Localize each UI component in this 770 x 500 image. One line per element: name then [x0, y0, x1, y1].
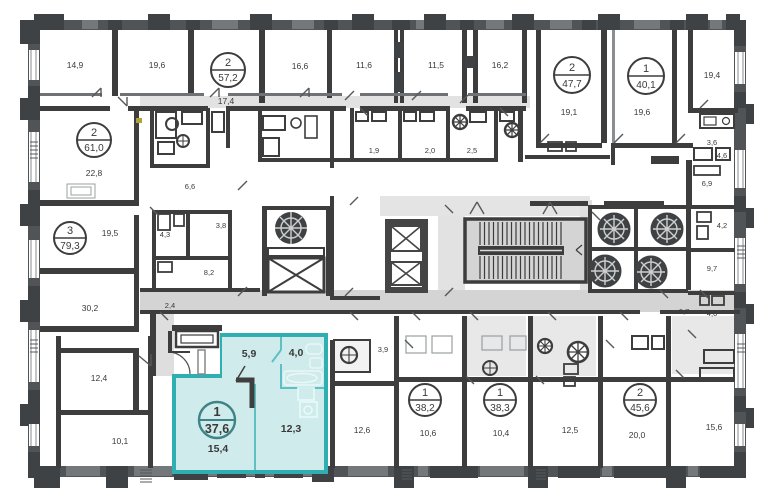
svg-text:19,1: 19,1: [561, 107, 578, 117]
svg-text:1: 1: [213, 404, 220, 419]
svg-text:45,6: 45,6: [630, 403, 650, 414]
svg-text:6,9: 6,9: [702, 179, 712, 188]
svg-text:12,4: 12,4: [91, 373, 108, 383]
svg-text:2: 2: [569, 62, 575, 74]
svg-text:12,6: 12,6: [354, 425, 371, 435]
svg-text:14,9: 14,9: [67, 60, 84, 70]
svg-text:22,8: 22,8: [86, 168, 103, 178]
svg-text:17,4: 17,4: [218, 96, 235, 106]
svg-text:2: 2: [637, 387, 643, 399]
svg-text:57,2: 57,2: [218, 73, 238, 84]
svg-text:4,3: 4,3: [160, 230, 170, 239]
svg-text:8,2: 8,2: [204, 268, 214, 277]
svg-text:79,3: 79,3: [60, 241, 80, 252]
svg-text:19,6: 19,6: [149, 60, 166, 70]
svg-text:38,3: 38,3: [490, 403, 510, 414]
svg-text:4,2: 4,2: [717, 221, 727, 230]
svg-text:10,6: 10,6: [420, 428, 437, 438]
svg-text:2,4: 2,4: [165, 301, 175, 310]
svg-text:4,6: 4,6: [717, 151, 727, 160]
svg-text:1: 1: [422, 387, 428, 399]
svg-text:20,0: 20,0: [629, 430, 646, 440]
svg-text:1: 1: [643, 63, 649, 75]
svg-text:3,8: 3,8: [216, 221, 226, 230]
svg-text:16,6: 16,6: [292, 61, 309, 71]
svg-text:47,7: 47,7: [562, 79, 582, 90]
svg-text:10,4: 10,4: [493, 428, 510, 438]
svg-text:1,9: 1,9: [369, 146, 379, 155]
svg-text:15,6: 15,6: [706, 422, 723, 432]
svg-text:2: 2: [91, 127, 97, 139]
svg-text:38,2: 38,2: [415, 403, 435, 414]
svg-text:4,6: 4,6: [707, 309, 717, 318]
svg-text:15,4: 15,4: [208, 443, 229, 455]
svg-text:11,6: 11,6: [356, 60, 372, 70]
svg-text:12,5: 12,5: [562, 425, 579, 435]
svg-text:19,4: 19,4: [704, 70, 721, 80]
svg-text:4,0: 4,0: [289, 347, 304, 359]
svg-text:61,0: 61,0: [84, 143, 104, 154]
svg-text:6,6: 6,6: [185, 182, 195, 191]
svg-text:19,6: 19,6: [634, 107, 651, 117]
svg-text:1: 1: [497, 387, 503, 399]
svg-text:19,5: 19,5: [102, 228, 119, 238]
svg-text:5,9: 5,9: [242, 348, 257, 360]
svg-text:40,1: 40,1: [636, 80, 656, 91]
svg-text:2,0: 2,0: [425, 146, 435, 155]
svg-text:30,2: 30,2: [82, 303, 99, 313]
svg-text:6,7: 6,7: [679, 307, 689, 316]
svg-text:16,2: 16,2: [492, 60, 509, 70]
svg-text:10,1: 10,1: [112, 436, 129, 446]
svg-text:2,5: 2,5: [467, 146, 477, 155]
svg-text:12,3: 12,3: [281, 423, 302, 435]
svg-text:37,6: 37,6: [205, 422, 229, 436]
svg-text:9,7: 9,7: [707, 264, 717, 273]
svg-text:3: 3: [67, 225, 73, 237]
svg-text:2: 2: [225, 57, 231, 69]
svg-text:3,9: 3,9: [378, 345, 388, 354]
svg-text:11,5: 11,5: [428, 60, 444, 70]
svg-text:3,6: 3,6: [707, 138, 717, 147]
